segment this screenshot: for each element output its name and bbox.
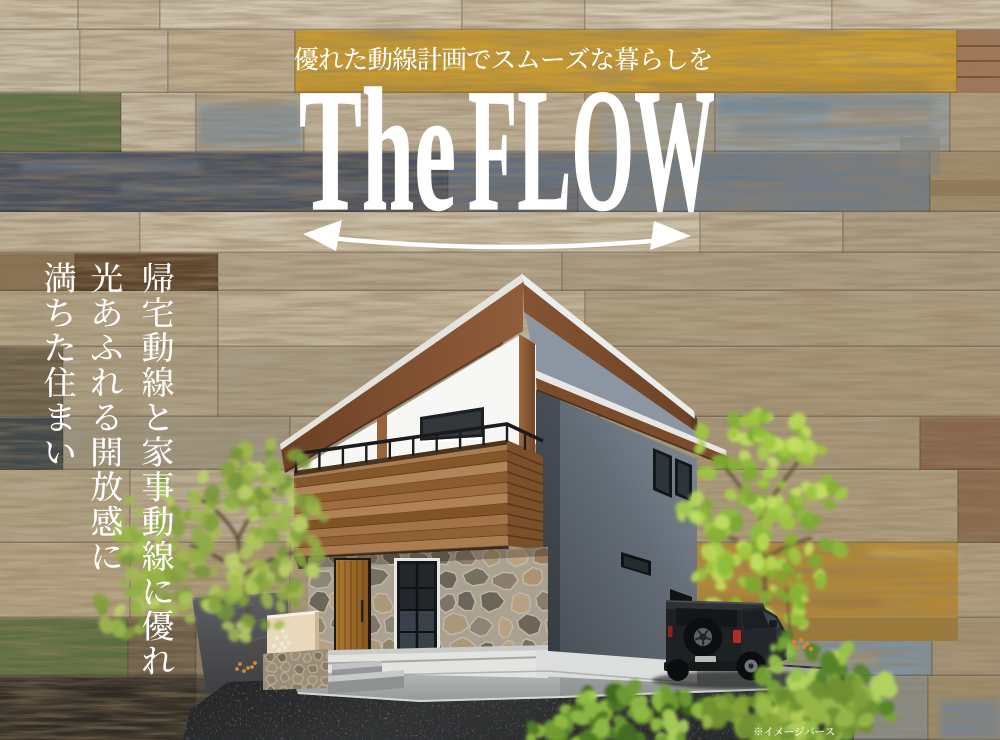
svg-text:The: The bbox=[299, 53, 456, 248]
svg-text:FLOW: FLOW bbox=[468, 53, 715, 248]
